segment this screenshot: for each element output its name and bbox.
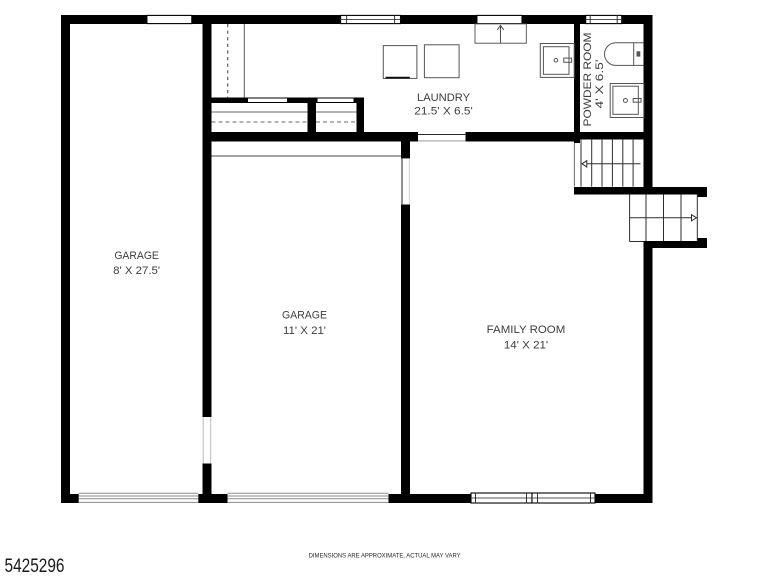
svg-text:GARAGE: GARAGE — [282, 310, 327, 322]
svg-text:8' X 27.5': 8' X 27.5' — [113, 265, 160, 277]
svg-text:4' X 6.5': 4' X 6.5' — [594, 60, 606, 109]
svg-text:GARAGE: GARAGE — [114, 250, 159, 262]
svg-text:DIMENSIONS ARE APPROXIMATE, AC: DIMENSIONS ARE APPROXIMATE, ACTUAL MAY V… — [309, 553, 461, 560]
svg-text:5425296: 5425296 — [5, 555, 65, 576]
svg-text:POWDER ROOM: POWDER ROOM — [582, 33, 594, 127]
svg-text:FAMILY ROOM: FAMILY ROOM — [487, 324, 566, 336]
svg-text:21.5' X 6.5': 21.5' X 6.5' — [414, 105, 473, 117]
svg-text:14' X 21': 14' X 21' — [504, 340, 548, 352]
svg-text:11' X 21': 11' X 21' — [283, 325, 326, 337]
svg-text:LAUNDRY: LAUNDRY — [417, 92, 470, 104]
